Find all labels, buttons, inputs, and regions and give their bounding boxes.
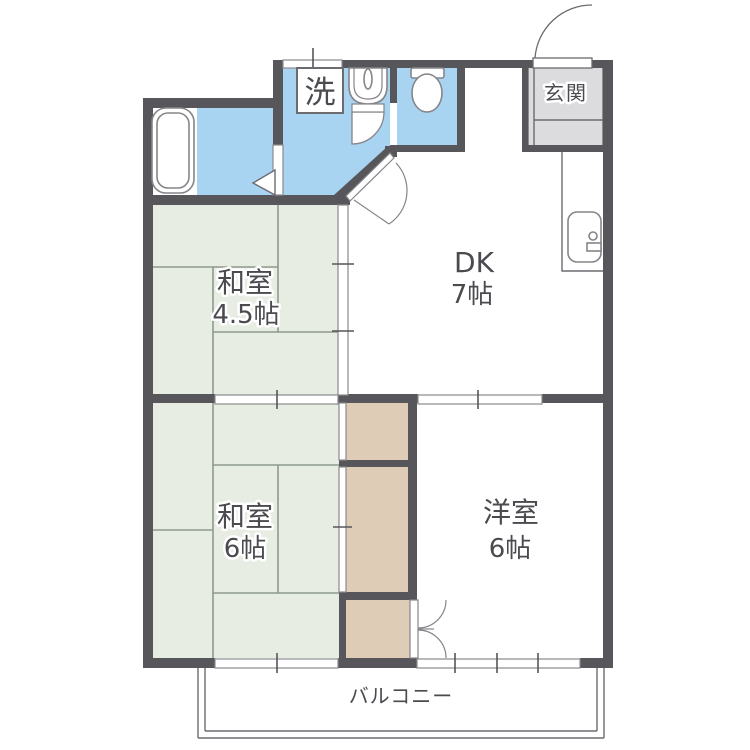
- fusuma-partition-dk: [338, 205, 348, 395]
- closet-top: [346, 403, 408, 460]
- closet-top-fusuma: [339, 403, 346, 460]
- bathtub-icon: [152, 108, 194, 193]
- closet-double-door-arc: [410, 600, 446, 658]
- washitsu6-label-size: 6帖: [224, 534, 267, 564]
- laundry-label: 洗: [305, 75, 336, 111]
- closet-middle: [346, 467, 408, 592]
- entry-door-arc: [533, 5, 592, 68]
- washitsu6-label-name: 和室: [217, 500, 273, 533]
- closet-column: [346, 403, 410, 658]
- balcony-label: バルコニー: [349, 684, 454, 708]
- youshitsu-label-name: 洋室: [483, 496, 539, 529]
- dk-label-size: 7帖: [451, 280, 494, 310]
- washbasin-icon: [349, 68, 387, 104]
- floor-plan-canvas: 洗 玄関 DK 7帖 和室 4.5帖 和室 6帖 洋室 6帖 バルコニー: [0, 0, 750, 750]
- dk-label-name: DK: [454, 246, 495, 279]
- washitsu45-label-size: 4.5帖: [212, 300, 279, 330]
- closet-middle-fusuma: [339, 467, 346, 592]
- genkan-floor: [528, 67, 603, 148]
- genkan-label: 玄関: [544, 81, 588, 105]
- youshitsu-window: [417, 659, 580, 668]
- floor-plan: 洗 玄関 DK 7帖 和室 4.5帖 和室 6帖 洋室 6帖 バルコニー: [0, 0, 750, 750]
- youshitsu-label-size: 6帖: [489, 534, 532, 564]
- closet-bottom: [346, 600, 410, 658]
- washitsu45-label-name: 和室: [217, 266, 273, 299]
- toilet-icon: [411, 68, 444, 112]
- sliding-door-dk-youshitsu: [418, 395, 542, 404]
- kitchen-sink-icon: [562, 152, 603, 271]
